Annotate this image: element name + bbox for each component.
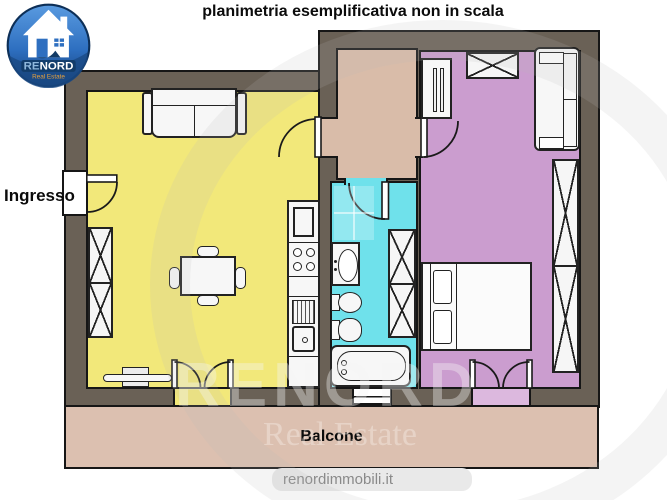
stove-burner bbox=[293, 248, 302, 257]
sink-drainer bbox=[292, 300, 315, 324]
living-balcony-french-door-icon bbox=[171, 359, 234, 390]
hall-bedroom-door-icon bbox=[420, 116, 462, 160]
chair bbox=[197, 295, 219, 306]
chair bbox=[169, 267, 180, 289]
bedroom-top-wardrobe bbox=[466, 52, 519, 79]
stove-burner bbox=[293, 262, 302, 271]
kitchen-counter-strip bbox=[287, 200, 320, 388]
bathtub bbox=[330, 345, 411, 387]
stove-burner bbox=[306, 262, 315, 271]
sofa-armrest bbox=[236, 92, 247, 135]
website-text: renordimmobili.it bbox=[283, 471, 393, 488]
wardrobe-living bbox=[88, 227, 113, 338]
sofa bbox=[151, 88, 237, 138]
chair bbox=[235, 267, 246, 289]
bathroom-sink bbox=[331, 242, 360, 286]
hallway bbox=[336, 48, 418, 180]
balcony-label: Balcone bbox=[64, 428, 599, 446]
stove-burner bbox=[306, 248, 315, 257]
floor-plan-image: planimetria esemplificativa non in scala bbox=[0, 0, 667, 500]
dresser-tv bbox=[421, 58, 452, 119]
shower-area bbox=[334, 186, 374, 240]
chair bbox=[197, 246, 219, 257]
pillow bbox=[433, 270, 452, 304]
svg-text:Real Estate: Real Estate bbox=[32, 74, 65, 81]
entrance-label: Ingresso bbox=[4, 186, 75, 206]
living-hall-door-icon bbox=[278, 116, 324, 160]
svg-text:RENORD: RENORD bbox=[24, 60, 74, 72]
bidet bbox=[331, 291, 363, 314]
bathroom-window bbox=[352, 387, 392, 405]
bedroom-balcony-door-sill bbox=[471, 387, 531, 407]
entry-door-icon bbox=[86, 174, 122, 218]
bedroom-wardrobe bbox=[552, 159, 579, 373]
bedroom-sofa bbox=[534, 47, 580, 151]
renord-logo: RENORD Real Estate bbox=[6, 3, 91, 88]
tv-screen bbox=[103, 374, 172, 382]
bathroom-cabinet bbox=[388, 229, 416, 338]
living-balcony-door-sill bbox=[173, 387, 232, 407]
fridge bbox=[293, 207, 314, 237]
toilet bbox=[331, 317, 363, 343]
bedroom-balcony-french-door-icon bbox=[469, 359, 533, 390]
double-bed bbox=[421, 262, 532, 351]
kitchen-sink bbox=[292, 326, 315, 352]
dining-table bbox=[180, 256, 236, 296]
pillow bbox=[433, 310, 452, 344]
page-title: planimetria esemplificativa non in scala bbox=[202, 3, 503, 21]
